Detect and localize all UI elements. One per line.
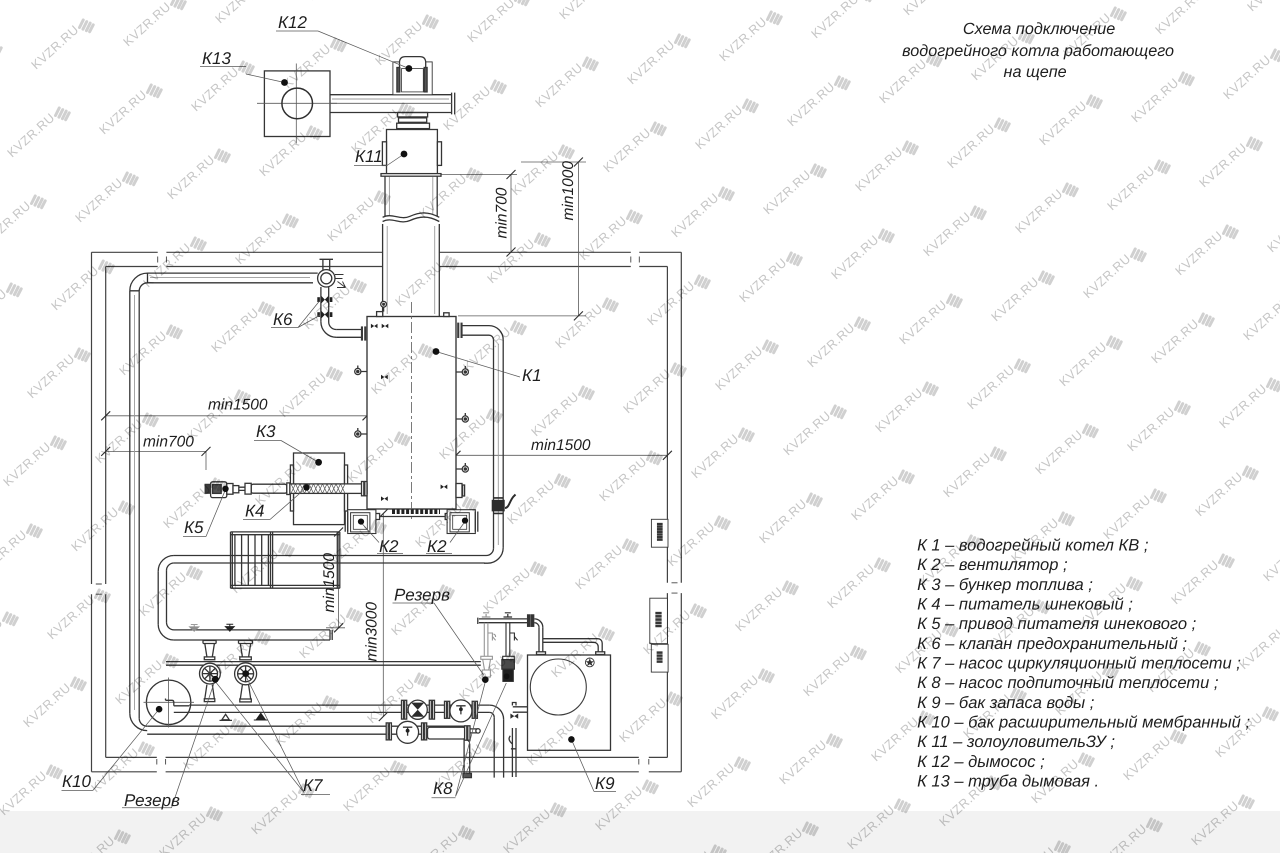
svg-text:К 5 – привод питателя шнеково: К 5 – привод питателя шнекового ;	[917, 615, 1197, 633]
svg-text:К3: К3	[256, 422, 276, 441]
svg-text:min700: min700	[494, 187, 511, 238]
svg-text:min3000: min3000	[364, 602, 381, 662]
svg-text:водогрейного котла работающего: водогрейного котла работающего	[902, 42, 1174, 60]
svg-text:К10: К10	[62, 772, 91, 791]
svg-text:К 6 – клапан предохранительны: К 6 – клапан предохранительный ;	[917, 635, 1187, 653]
svg-text:на щепе: на щепе	[1004, 63, 1067, 81]
svg-text:Резерв: Резерв	[124, 791, 180, 810]
svg-text:К 12 – дымосос ;: К 12 – дымосос ;	[917, 753, 1045, 771]
svg-text:К5: К5	[184, 518, 204, 537]
svg-text:К 11 – золоуловительЗУ ;: К 11 – золоуловительЗУ ;	[917, 733, 1115, 751]
svg-text:min1500: min1500	[531, 437, 591, 454]
svg-text:К2: К2	[379, 537, 399, 556]
svg-text:К6: К6	[273, 310, 293, 329]
svg-text:К9: К9	[595, 774, 615, 793]
svg-text:К 3 – бункер топлива ;: К 3 – бункер топлива ;	[917, 576, 1093, 594]
svg-text:К1: К1	[522, 366, 541, 385]
svg-text:К13: К13	[202, 49, 231, 68]
svg-text:min1000: min1000	[560, 161, 577, 221]
svg-text:К12: К12	[278, 13, 307, 32]
